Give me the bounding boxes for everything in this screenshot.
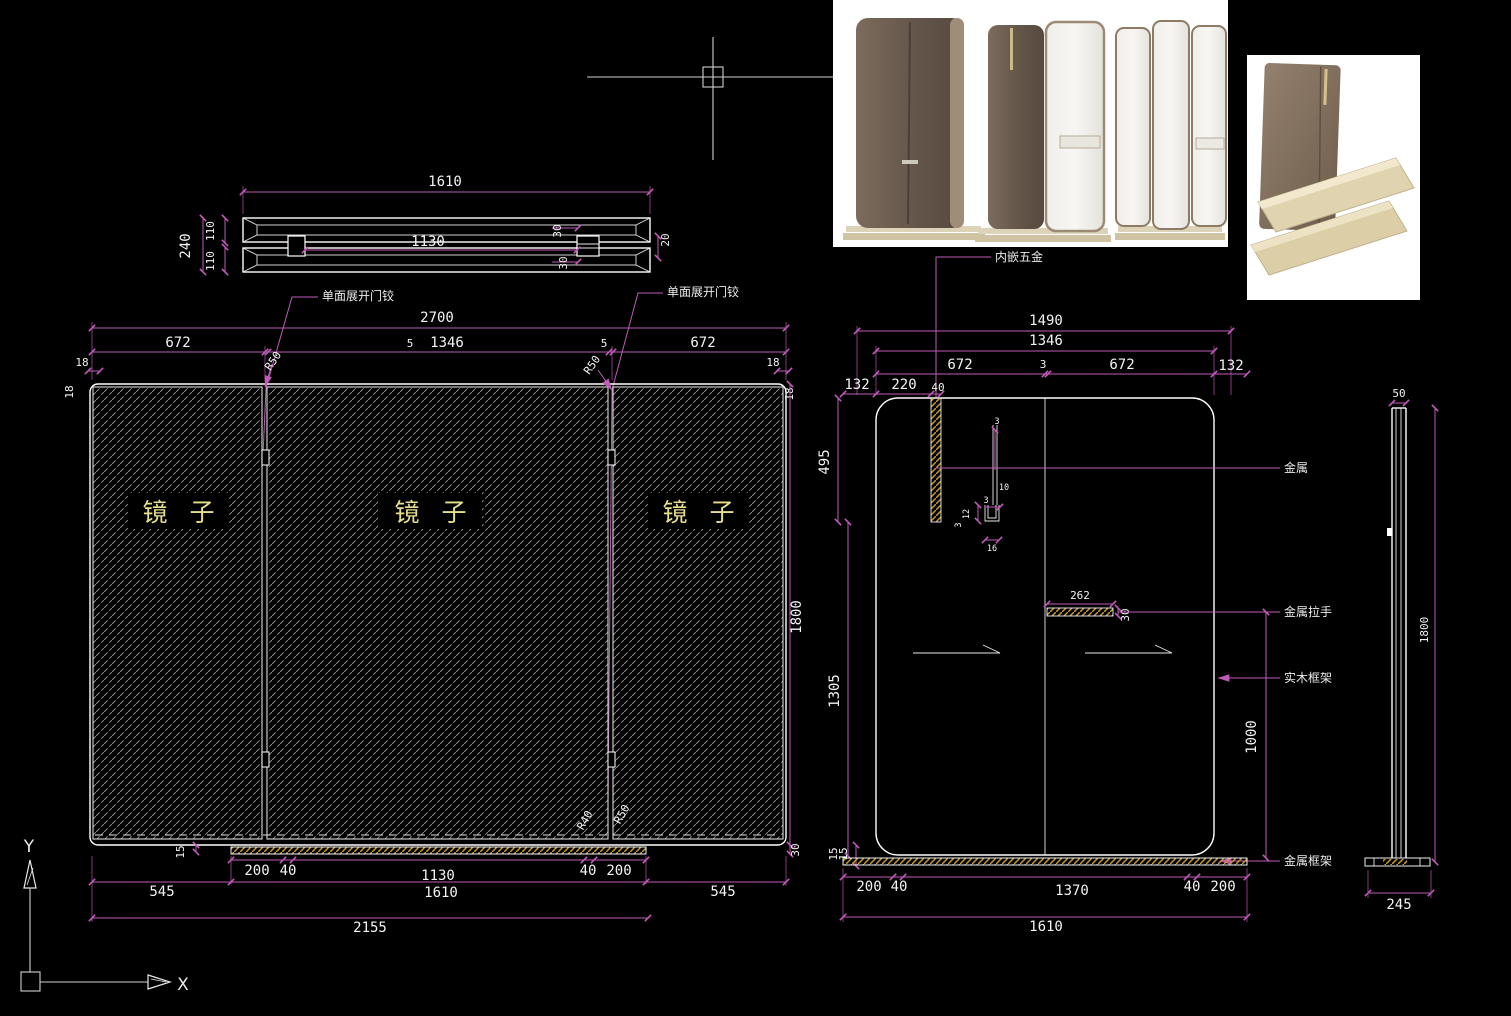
side-view: 50 1800 245 bbox=[1365, 387, 1435, 913]
ucs-x-arrow bbox=[148, 975, 170, 989]
dim-base-lip: 15 bbox=[174, 845, 187, 858]
dim-db200r: 200 bbox=[1210, 879, 1235, 895]
dim-v1305: 1305 bbox=[827, 674, 843, 708]
ucs-x-label: X bbox=[177, 975, 189, 995]
dim-side-w50: 50 bbox=[1392, 387, 1405, 400]
dim-v495: 495 bbox=[817, 449, 833, 474]
detail-view: 内嵌五金 3 10 3 12 3 16 262 30 金属 金属拉手 实木框架 bbox=[817, 249, 1332, 935]
product-photo-screens bbox=[833, 0, 1228, 247]
hinge-mark bbox=[262, 450, 269, 465]
dim-gap-left: 5 bbox=[407, 337, 414, 350]
dim-u12: 12 bbox=[962, 509, 972, 519]
dim-handle-h: 30 bbox=[1119, 608, 1132, 621]
dim-gap3: 3 bbox=[1040, 358, 1047, 371]
cad-canvas[interactable]: 1610 1130 240 110 110 30 30 20 单面展开门铰 单面… bbox=[0, 0, 1511, 1016]
dim-b40r: 40 bbox=[580, 863, 597, 879]
dim-handle-len: 262 bbox=[1070, 589, 1090, 602]
dim-b545r: 545 bbox=[710, 884, 735, 900]
hinge-label-right: 单面展开门铰 bbox=[667, 284, 739, 299]
dim-db40l: 40 bbox=[891, 879, 908, 895]
dim-m132l: 132 bbox=[844, 377, 869, 393]
dim-u3b: 3 bbox=[983, 496, 988, 506]
open-mirror-3 bbox=[1192, 26, 1226, 226]
metal-handle-bar bbox=[1047, 608, 1113, 616]
swing-mark-left bbox=[913, 645, 1000, 653]
radius-top-left: R50 bbox=[262, 349, 284, 373]
ucs-origin-box bbox=[21, 972, 40, 991]
embedded-hardware-strip bbox=[931, 398, 941, 522]
dim-p672l: 672 bbox=[947, 357, 972, 373]
ucs-y-label: Y bbox=[23, 837, 35, 857]
crosshair-cursor bbox=[587, 37, 840, 160]
metal-handle-label: 金属拉手 bbox=[1284, 604, 1332, 619]
metal-frame-label: 金属框架 bbox=[1284, 853, 1332, 868]
hinge-mark bbox=[608, 450, 615, 465]
hinge-mark bbox=[262, 752, 269, 767]
open-mirror-1 bbox=[1116, 28, 1150, 226]
dim-b200l: 200 bbox=[244, 863, 269, 879]
dim-edge-tl: 18 bbox=[75, 356, 88, 369]
mirror-panel-left bbox=[93, 387, 262, 839]
dim-panel-left: 672 bbox=[165, 335, 190, 351]
dim-front-height: 1800 bbox=[789, 600, 805, 634]
half-open-panel bbox=[988, 25, 1044, 229]
mirror-panel-center bbox=[267, 387, 608, 839]
dim-edge-tr: 18 bbox=[766, 356, 779, 369]
dim-m132r: 132 bbox=[1218, 358, 1243, 374]
dim-edge-tl-side: 18 bbox=[63, 385, 76, 398]
metal-label: 金属 bbox=[1284, 460, 1308, 475]
dim-db1370: 1370 bbox=[1055, 883, 1089, 899]
hinge-label-left: 单面展开门铰 bbox=[322, 288, 394, 303]
dim-p672r: 672 bbox=[1109, 357, 1134, 373]
mirror-text-2: 镜 子 bbox=[395, 498, 474, 527]
hardware-label: 内嵌五金 bbox=[995, 249, 1043, 264]
dim-fold-offset: 20 bbox=[659, 233, 672, 246]
dim-db200l: 200 bbox=[856, 879, 881, 895]
wood-frame-label: 实木框架 bbox=[1284, 670, 1332, 685]
dim-db1610: 1610 bbox=[1029, 919, 1063, 935]
front-view: 单面展开门铰 单面展开门铰 镜 子 镜 子 镜 子 2700 672 5 134… bbox=[63, 284, 805, 936]
dim-gap-right: 5 bbox=[601, 337, 608, 350]
dim-b2155: 2155 bbox=[353, 920, 387, 936]
dim-u3c: 3 bbox=[954, 522, 964, 527]
swing-mark-right bbox=[1085, 645, 1172, 653]
dim-fold-height: 240 bbox=[178, 233, 194, 258]
dim-w1346: 1346 bbox=[1029, 333, 1063, 349]
dim-fold-total: 1610 bbox=[428, 174, 462, 190]
product-photo-base-detail bbox=[1247, 55, 1420, 300]
dim-fold-inner: 1130 bbox=[411, 234, 445, 250]
section-view: 1610 1130 240 110 110 30 30 20 bbox=[178, 174, 672, 272]
side-handle-mark bbox=[1387, 528, 1392, 536]
dim-front-total: 2700 bbox=[420, 310, 454, 326]
dim-fold-lower: 110 bbox=[204, 251, 217, 271]
hinge-notch-left bbox=[288, 236, 305, 256]
dim-u16: 16 bbox=[987, 544, 997, 554]
dim-fold-upper: 110 bbox=[204, 221, 217, 241]
dim-side-h1800: 1800 bbox=[1418, 617, 1431, 644]
dim-u3a: 3 bbox=[994, 417, 999, 427]
dim-m220: 220 bbox=[891, 377, 916, 393]
ucs-y-arrow bbox=[24, 860, 36, 888]
dim-w1490: 1490 bbox=[1029, 313, 1063, 329]
dim-fold-stub-bottom: 30 bbox=[557, 256, 570, 269]
drawing-area: 1610 1130 240 110 110 30 30 20 单面展开门铰 单面… bbox=[0, 0, 1511, 1016]
mirror-panel-right bbox=[613, 387, 783, 839]
mirror-text-3: 镜 子 bbox=[663, 498, 742, 527]
detail-base-rail bbox=[843, 858, 1247, 865]
dim-v1000: 1000 bbox=[1244, 720, 1260, 754]
dim-b545l: 545 bbox=[149, 884, 174, 900]
dim-b40l: 40 bbox=[280, 863, 297, 879]
dim-b1610: 1610 bbox=[424, 885, 458, 901]
dim-base-h: 30 bbox=[789, 843, 802, 856]
dim-panel-right: 672 bbox=[690, 335, 715, 351]
handle-detail bbox=[902, 160, 918, 164]
dim-panel-center: 1346 bbox=[430, 335, 464, 351]
front-base-rail bbox=[231, 847, 646, 854]
dim-u10: 10 bbox=[999, 483, 1009, 493]
mirror-text-1: 镜 子 bbox=[143, 498, 222, 527]
open-mirror-2 bbox=[1153, 21, 1189, 229]
dim-fold-stub-top: 30 bbox=[551, 224, 564, 237]
hinge-mark bbox=[608, 752, 615, 767]
dim-side-b245: 245 bbox=[1386, 897, 1411, 913]
dim-m40: 40 bbox=[931, 381, 944, 394]
ucs-icon: Y X bbox=[21, 837, 189, 995]
dim-b200r: 200 bbox=[606, 863, 631, 879]
hinge-notch-right bbox=[577, 236, 599, 256]
dim-db40r: 40 bbox=[1184, 879, 1201, 895]
half-open-mirror bbox=[1046, 22, 1104, 231]
